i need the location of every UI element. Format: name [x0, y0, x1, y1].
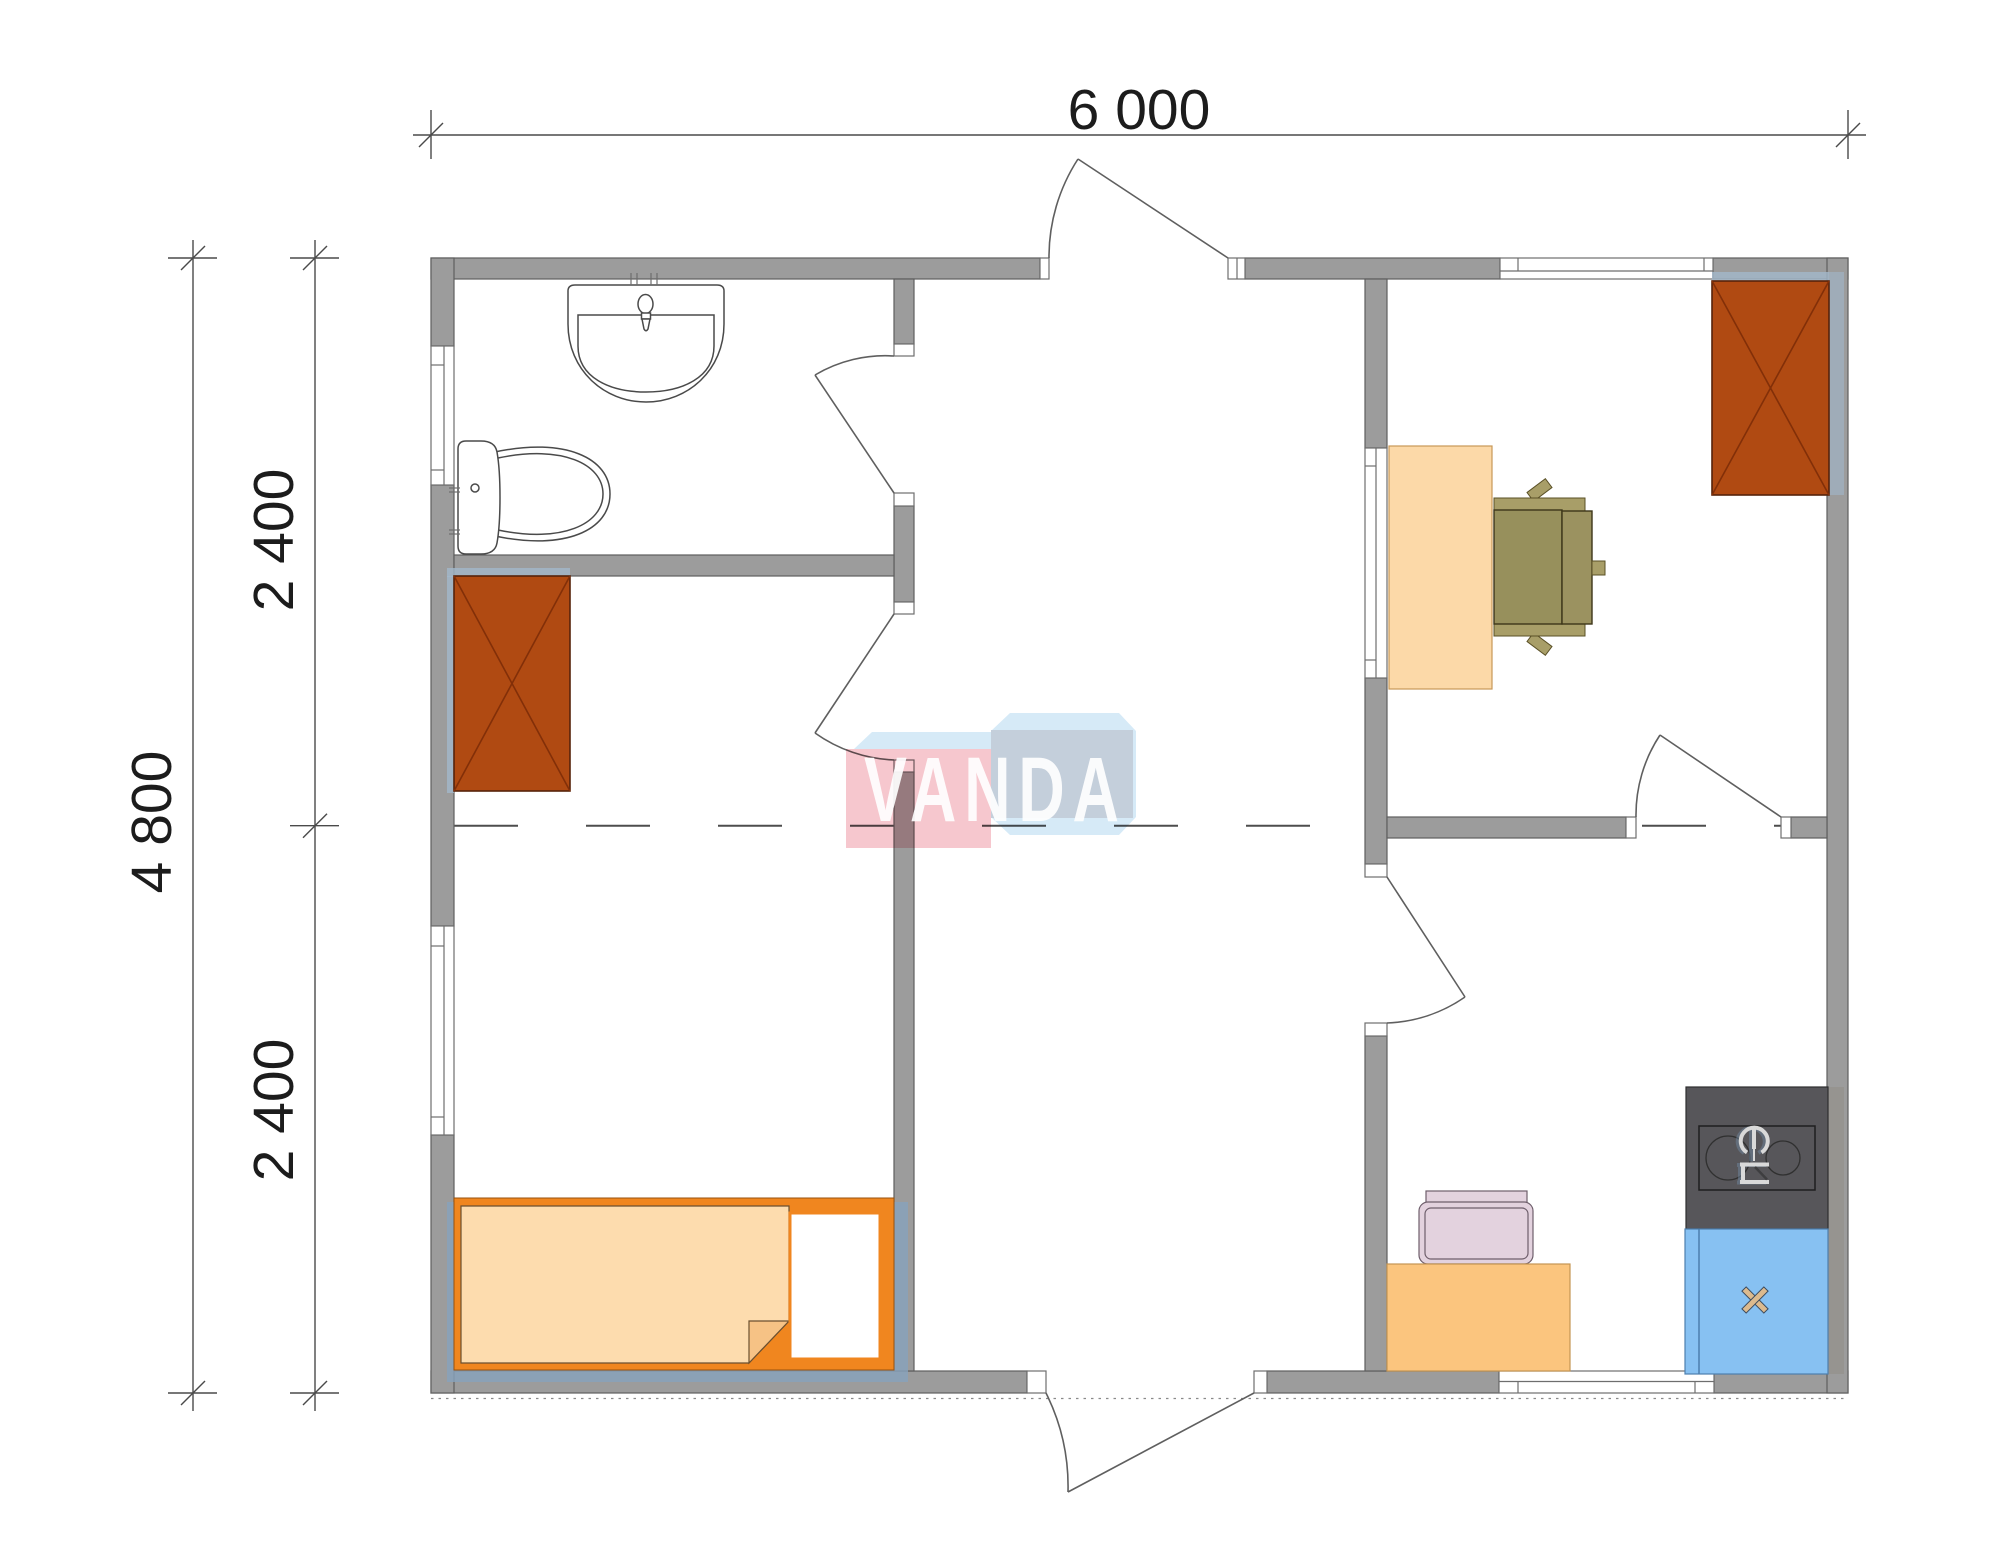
svg-text:6 000: 6 000 — [1068, 78, 1211, 142]
svg-text:2 400: 2 400 — [242, 1039, 306, 1182]
svg-text:2 400: 2 400 — [242, 469, 306, 612]
svg-text:VANDA: VANDA — [864, 738, 1127, 841]
svg-text:4 800: 4 800 — [120, 751, 184, 894]
